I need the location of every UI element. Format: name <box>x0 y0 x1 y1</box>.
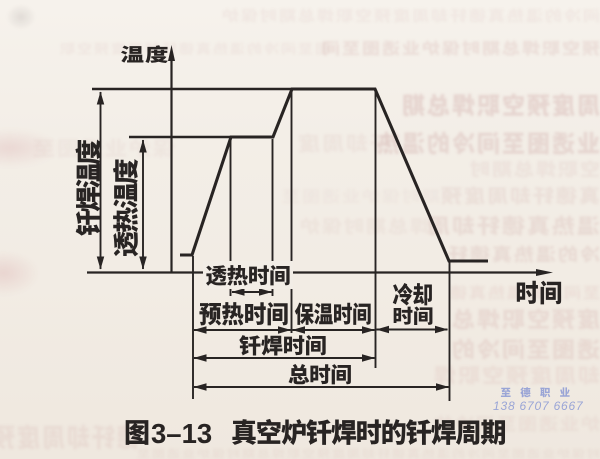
svg-text:3–13: 3–13 <box>151 418 212 449</box>
svg-text:138 6707 6667: 138 6707 6667 <box>493 399 584 413</box>
